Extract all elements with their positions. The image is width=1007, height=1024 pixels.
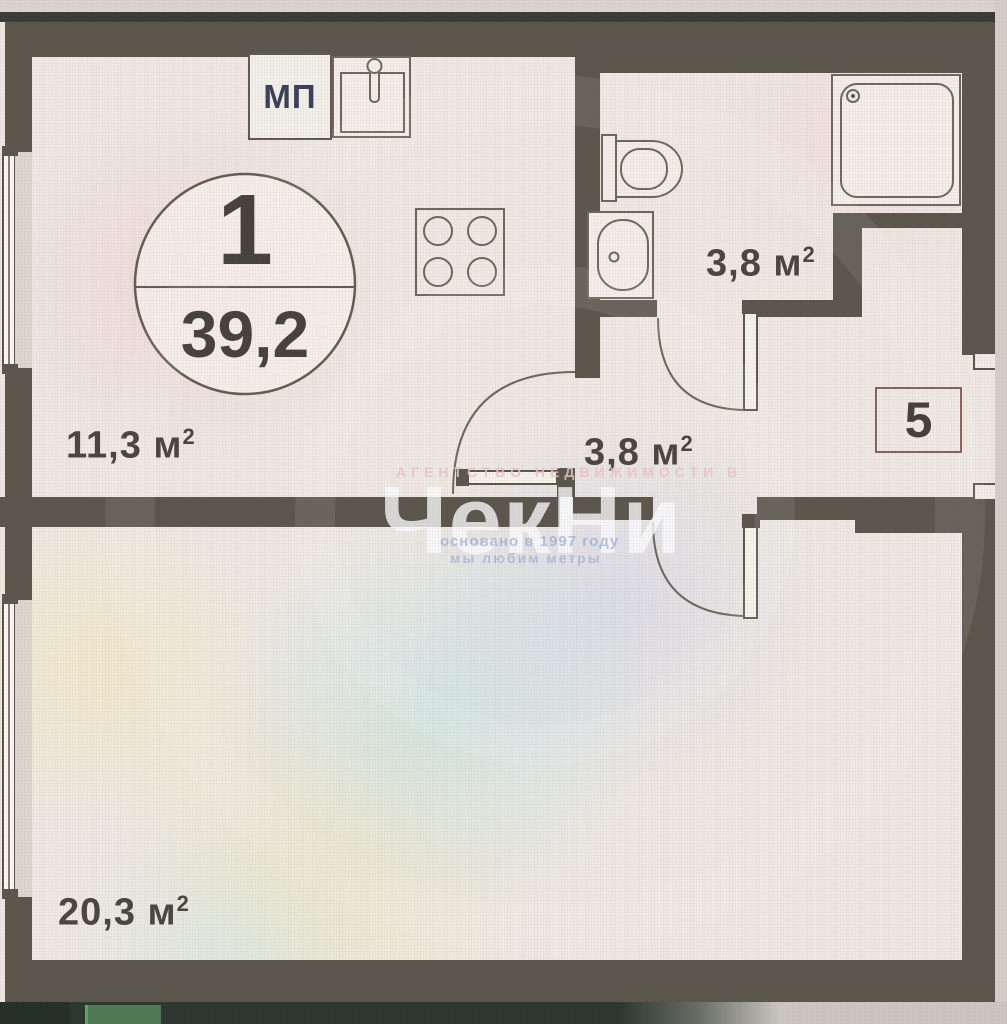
floor-plan-photo: МП 5 1 39,2 11,3 м2 3,8 м2 3,8 м2 20,3 м… [0, 0, 1007, 1024]
window-icon [2, 594, 32, 899]
shower-tray-icon [832, 75, 960, 205]
window-mp-label: МП [263, 78, 316, 116]
apartment-total-area: 39,2 [135, 296, 355, 372]
window-icon [2, 146, 32, 374]
watermark-founded-line: основано в 1997 году [440, 533, 619, 550]
photo-right-margin [995, 0, 1007, 1024]
watermark-slogan-line: мы любим метры [450, 550, 602, 566]
window-mp-box: МП [248, 53, 332, 140]
photo-bottom-green-chip [85, 1005, 161, 1024]
unit-number-box: 5 [875, 387, 962, 453]
unit-number-label: 5 [905, 391, 933, 449]
room-label-kitchen: 11,3 м2 [66, 424, 196, 468]
room-label-bathroom: 3,8 м2 [706, 242, 816, 286]
photo-top-margin [0, 0, 1007, 12]
apartment-number: 1 [145, 178, 345, 283]
room-label-living: 20,3 м2 [58, 891, 190, 935]
photo-top-edge-line [0, 12, 1007, 22]
